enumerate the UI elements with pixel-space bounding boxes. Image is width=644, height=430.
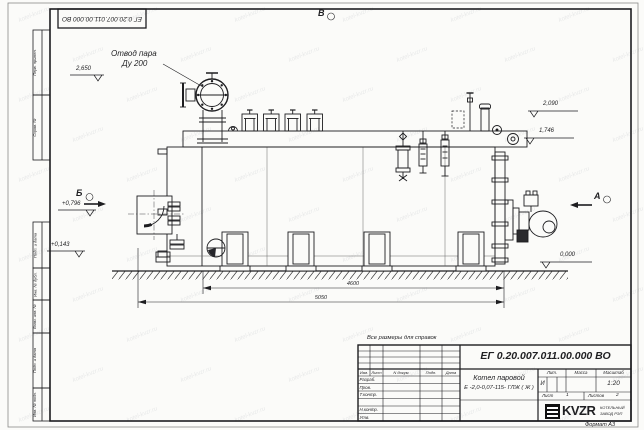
manhole (207, 239, 225, 257)
role-nkontr: Н.контр. (360, 408, 379, 412)
role-tkontr: Т.контр. (360, 393, 378, 397)
margin-label-sprav-no: Справ. № (33, 95, 42, 160)
margin-label-vzam-inv: Взам. инв. № (33, 300, 42, 333)
burner-assembly (505, 191, 557, 242)
view-letter-a: А (594, 192, 601, 201)
scale-value: 1:20 (596, 381, 631, 388)
outer-border (8, 3, 638, 427)
title-product-name: Котел паровой (460, 374, 538, 381)
role-utv: Утв. (360, 416, 370, 420)
title-product-code: Е -2,0-0,07-115- ГЛЖ ( Ж ) (460, 386, 538, 392)
level-2650: 2,650 (76, 66, 91, 72)
title-doc-number: ЕГ 0.20.007.011.00.000 ВО (460, 351, 631, 362)
stamp-number: ЕГ 0.20.007.011.00.000 ВО (58, 11, 146, 26)
margin-label-inv-dubl: Инв. № дубл. (33, 268, 42, 300)
col-doc: N докум. (383, 371, 420, 375)
org-name-line1: КОТЕЛЬНЫЙ (600, 406, 625, 410)
col-izm: Изм. (358, 371, 370, 375)
level-2090: 2,090 (543, 101, 558, 107)
drawing-linework (0, 0, 644, 430)
sheet-value: 1 (566, 394, 569, 399)
org-name-line2: ЗАВОД РЭП (600, 412, 622, 416)
top-fittings (452, 93, 491, 131)
rear-flange (492, 152, 508, 264)
instruments (396, 131, 449, 181)
format-label: Формат А3 (560, 423, 640, 429)
sheets-value: 2 (616, 394, 619, 399)
callout-steam-outlet-line2: Ду 200 (122, 60, 147, 68)
view-arrows (84, 13, 611, 208)
front-box (128, 149, 185, 262)
ground-line (112, 271, 568, 280)
margin-label-podp-data-1: Подп. и дата (33, 222, 42, 268)
level-0000: 0,000 (560, 252, 575, 258)
role-razrab: Разраб. (360, 378, 376, 382)
col-date: Дата (442, 371, 460, 375)
sheets-label: Листов (588, 394, 604, 398)
view-letter-v: В (318, 9, 325, 18)
drawing-sheet: kotel-kvzr.rukotel-kvzr.rukotel-kvzr.ruk… (0, 0, 644, 430)
scale-label: Масштаб (596, 371, 631, 375)
reference-note: Все размеры для справок (367, 336, 436, 342)
callout-steam-outlet-line1: Отвод пара (111, 50, 157, 58)
view-letter-b: Б (76, 189, 82, 198)
dim-5050: 5050 (301, 296, 341, 302)
dim-4600: 4600 (333, 282, 373, 288)
level-0143: +0,143 (51, 242, 70, 248)
safety-valves (229, 110, 323, 131)
lit-value: И (538, 381, 547, 387)
col-list: Лист (370, 371, 383, 375)
kvzr-logo-icon (545, 404, 560, 419)
kvzr-logo-text: KVZR (562, 404, 595, 417)
sheet-label: Лист (542, 394, 553, 398)
level-1746: 1,746 (539, 128, 554, 134)
mass-label: Масса (566, 371, 596, 375)
role-prov: Пров. (360, 386, 372, 390)
level-0796: +0,796 (62, 201, 81, 207)
lit-label: Лит. (538, 371, 566, 375)
margin-label-podp-data-2: Подп. и дата (33, 333, 42, 388)
col-sign: Подп. (420, 371, 442, 375)
level-marks (47, 75, 592, 268)
margin-label-inv-podl: Инв. № подл. (33, 388, 42, 421)
margin-label-perv-primen: Перв. примен. (33, 30, 42, 95)
support-feet (220, 232, 486, 271)
